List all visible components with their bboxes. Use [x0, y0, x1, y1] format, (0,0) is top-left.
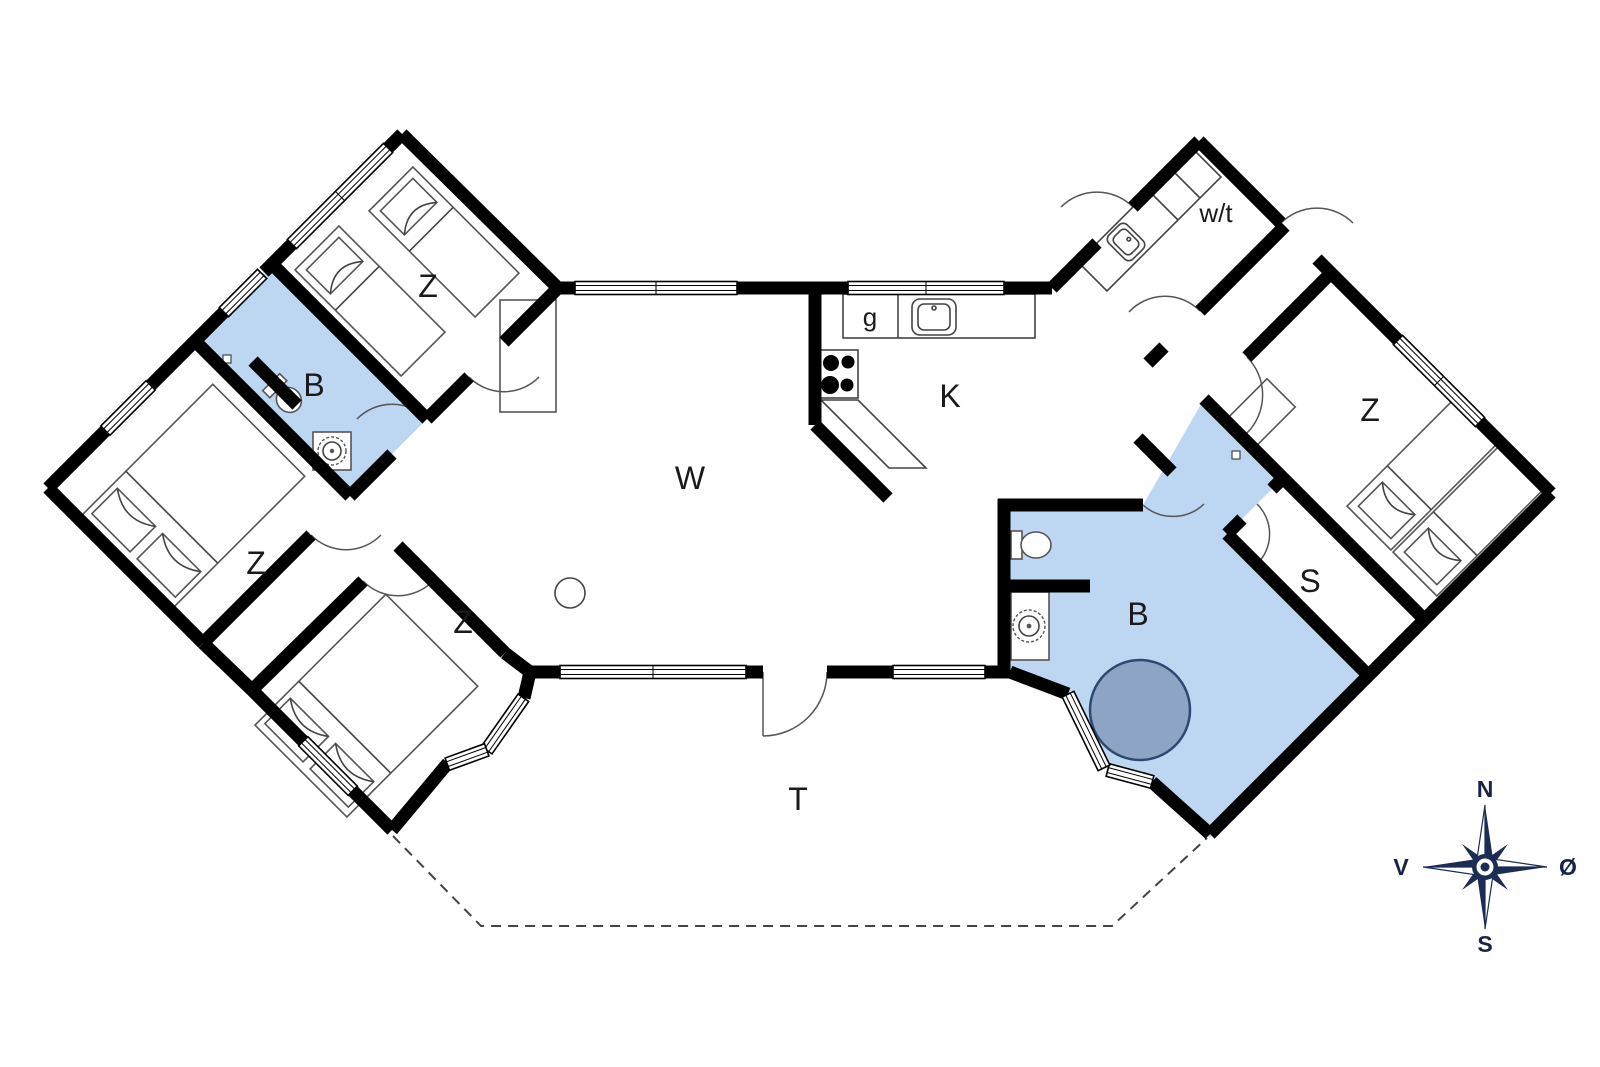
drain-icon	[1232, 451, 1240, 459]
compass-north-label: N	[1477, 776, 1494, 802]
room-label-utility: w/t	[1198, 198, 1233, 228]
toilet-icon	[1011, 531, 1051, 559]
table-icon	[555, 578, 585, 608]
compass-west-label: V	[1393, 854, 1409, 880]
compass-east-label: Ø	[1559, 854, 1577, 880]
terrace-outline	[393, 836, 1207, 926]
room-label-bath-left: B	[303, 367, 324, 403]
bath-sink-icon	[1013, 610, 1045, 642]
double-bed-icon	[255, 594, 478, 817]
room-label-terrace: T	[788, 781, 808, 817]
floor-plan-page: Z B Z Z W K g w/t Z S B T N S V Ø	[0, 0, 1600, 1067]
bathtub-icon	[1090, 660, 1190, 760]
room-label-storage: S	[1299, 563, 1320, 599]
kitchen-counter-angled	[821, 400, 926, 468]
room-label-kitchen: K	[939, 378, 960, 414]
room-label-fridge: g	[863, 302, 877, 332]
room-label-bedroom-right: Z	[1360, 392, 1380, 428]
room-label-living: W	[675, 460, 706, 496]
compass-icon: N S V Ø	[1393, 776, 1577, 957]
room-label-bedroom-top-left: Z	[418, 268, 438, 304]
compass-south-label: S	[1477, 931, 1492, 957]
room-label-bedroom-lower-left: Z	[453, 604, 473, 640]
room-label-bath-right: B	[1127, 596, 1148, 632]
room-label-bedroom-mid-left: Z	[246, 545, 266, 581]
floor-plan: Z B Z Z W K g w/t Z S B T N S V Ø	[0, 0, 1600, 1067]
